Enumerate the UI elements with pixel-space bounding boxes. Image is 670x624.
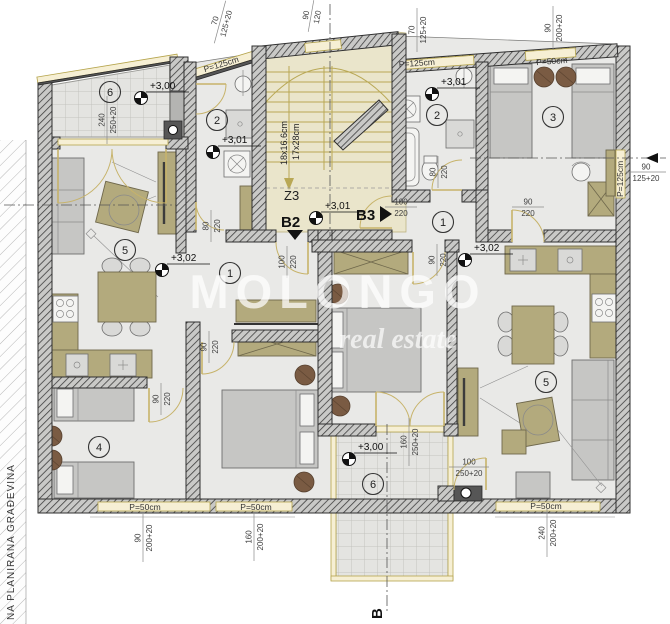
sink-right <box>558 249 582 271</box>
stair-flight-label: Z3 <box>284 188 299 203</box>
svg-text:+3,01: +3,01 <box>441 77 467 88</box>
rug <box>295 365 315 385</box>
svg-text:160: 160 <box>400 435 409 449</box>
svg-text:90: 90 <box>544 23 553 32</box>
floor-plan-svg: NA PLANIRANA GRAĐEVINA <box>0 0 670 624</box>
parapet-label: P=125cm <box>615 161 625 197</box>
svg-text:220: 220 <box>163 392 172 406</box>
svg-text:240: 240 <box>98 113 107 127</box>
svg-text:80: 80 <box>202 221 211 230</box>
shower-right <box>446 120 474 148</box>
svg-text:220: 220 <box>213 219 222 233</box>
svg-text:90: 90 <box>134 533 143 542</box>
svg-text:90: 90 <box>428 255 437 264</box>
svg-text:125+20: 125+20 <box>633 174 660 183</box>
watermark-brand: MOLONGO <box>189 265 486 318</box>
dim-bottom-bedroom-window: 160 200+20 <box>245 513 266 561</box>
wall-segment <box>176 143 186 253</box>
adjacent-site-hatch: NA PLANIRANA GRAĐEVINA <box>0 140 26 624</box>
svg-text:3: 3 <box>550 112 556 124</box>
sofa-left <box>52 158 84 254</box>
svg-text:200+20: 200+20 <box>145 524 154 551</box>
bed-room4-top <box>54 385 134 421</box>
dim-bottom-living-right-window: 240 200+20 <box>538 509 559 557</box>
svg-text:100: 100 <box>394 198 408 207</box>
chair-living-right <box>516 472 550 503</box>
svg-text:250+20: 250+20 <box>456 469 483 478</box>
svg-text:250+20: 250+20 <box>411 428 420 455</box>
svg-text:125+20: 125+20 <box>218 9 234 38</box>
svg-text:90: 90 <box>152 394 161 403</box>
rug <box>556 67 576 87</box>
wall-segment <box>226 230 276 242</box>
svg-text:5: 5 <box>543 377 549 389</box>
wall-segment <box>488 230 512 242</box>
svg-text:200+20: 200+20 <box>549 519 558 546</box>
svg-text:6: 6 <box>107 87 113 99</box>
wall-segment <box>444 424 458 436</box>
bed-room4-bottom <box>54 462 134 498</box>
svg-text:+3,00: +3,00 <box>150 81 176 92</box>
parapet-label: P=50cm <box>530 501 561 511</box>
stair-tread-note-2: 17x28cm <box>291 123 301 160</box>
svg-text:+3,00: +3,00 <box>358 442 384 453</box>
svg-text:160: 160 <box>245 530 254 544</box>
svg-text:200+20: 200+20 <box>256 523 265 550</box>
watermark-tagline: real estate <box>339 324 456 355</box>
wall-segment <box>476 62 488 192</box>
double-bed-left <box>222 390 318 468</box>
svg-text:80: 80 <box>429 167 438 176</box>
sofa-right <box>572 360 614 480</box>
svg-text:220: 220 <box>521 209 535 218</box>
svg-text:5: 5 <box>122 245 128 257</box>
svg-text:+3,02: +3,02 <box>171 253 197 264</box>
wall-segment <box>476 190 488 242</box>
wall-segment <box>312 240 412 252</box>
floor-plan-page: NA PLANIRANA GRAĐEVINA <box>0 0 670 624</box>
dim-right-edge-window: 90 125+20 <box>626 163 666 184</box>
svg-text:125+20: 125+20 <box>419 16 428 43</box>
svg-text:6: 6 <box>370 479 376 491</box>
svg-text:2: 2 <box>434 110 440 122</box>
section-arrow-icon <box>646 153 658 163</box>
wall-segment <box>38 80 52 513</box>
svg-text:220: 220 <box>211 340 220 354</box>
svg-text:1: 1 <box>440 217 446 229</box>
dim-stair-top-window: 90 120 <box>299 0 325 34</box>
bed-room3-right <box>572 64 614 158</box>
svg-text:120: 120 <box>312 9 323 24</box>
parapet-label: P=50cm <box>240 502 271 512</box>
svg-text:200+20: 200+20 <box>555 14 564 41</box>
wall-segment <box>318 230 332 436</box>
svg-text:2: 2 <box>214 115 220 127</box>
wall-segment <box>544 230 616 242</box>
section-marker-b3: B3 <box>356 207 375 224</box>
svg-text:90: 90 <box>642 163 651 172</box>
site-label: NA PLANIRANA GRAĐEVINA <box>6 464 17 620</box>
svg-text:100: 100 <box>462 458 476 467</box>
svg-text:4: 4 <box>96 442 102 454</box>
wall-segment <box>232 330 318 342</box>
svg-text:+3,01: +3,01 <box>222 135 248 146</box>
svg-text:+3,02: +3,02 <box>474 243 500 254</box>
svg-text:250+20: 250+20 <box>109 106 118 133</box>
svg-text:220: 220 <box>394 209 408 218</box>
stair-tread-note-1: 18x16.6cm <box>279 121 289 165</box>
washing-machine-left <box>224 151 250 177</box>
curtain-right <box>606 150 615 196</box>
parapet-label: P=50cm <box>129 502 160 512</box>
wall-segment <box>186 322 200 499</box>
section-marker-b2: B2 <box>281 214 300 231</box>
stove-right <box>592 294 616 322</box>
svg-text:90: 90 <box>301 9 312 20</box>
wall-segment <box>52 377 147 388</box>
svg-text:90: 90 <box>524 198 533 207</box>
svg-text:+3,01: +3,01 <box>325 201 351 212</box>
stove-left <box>53 296 78 322</box>
dim-top-left-window: 70 125+20 <box>205 0 236 46</box>
wall-segment <box>252 46 266 232</box>
wall-segment <box>445 240 459 252</box>
shaft-block <box>438 486 482 501</box>
rug <box>534 67 554 87</box>
section-marker-b-bottom: B <box>369 608 386 619</box>
wall-segment <box>318 424 376 436</box>
shaft-block <box>164 121 182 139</box>
rug <box>330 396 350 416</box>
svg-text:240: 240 <box>538 526 547 540</box>
shower-left <box>226 110 254 138</box>
rug <box>294 472 314 492</box>
sink-left <box>66 354 88 376</box>
wall-segment <box>616 46 630 513</box>
terrace-door-sill <box>58 139 168 145</box>
dim-bottom-room4-window: 90 200+20 <box>134 514 155 562</box>
svg-text:90: 90 <box>200 342 209 351</box>
bed-room3-left <box>490 64 532 158</box>
svg-text:70: 70 <box>408 25 417 34</box>
svg-text:220: 220 <box>440 165 449 179</box>
